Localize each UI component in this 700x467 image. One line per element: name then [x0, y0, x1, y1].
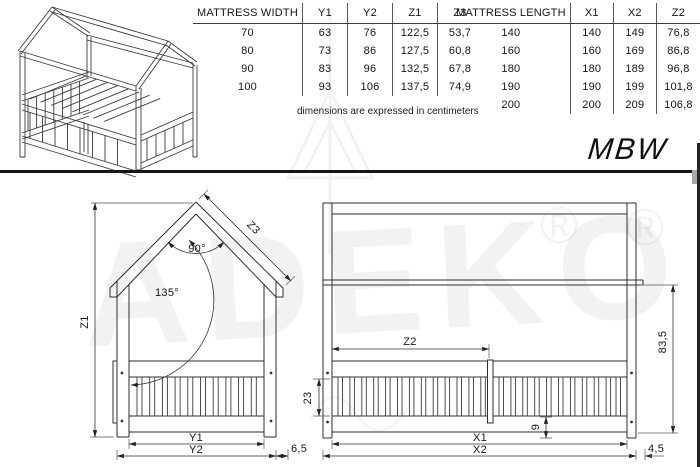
table-row: 14014014976,8: [452, 24, 700, 43]
isometric-view: [18, 7, 197, 177]
front-view-drawing: Z1 Z3 90° 135° Y1 Y2 6,5: [79, 190, 307, 460]
dim-label-base-height: 9: [530, 424, 542, 430]
dim-label-wall-height: 83,5: [657, 331, 669, 354]
table-row: 807386127,560,8: [193, 42, 482, 60]
dim-label-roof-overhang: 4,5: [648, 443, 664, 455]
table-title-cell: MATTRESS LENGTH: [452, 3, 570, 24]
size-cell: 70: [193, 24, 302, 43]
size-cell: 140: [452, 24, 570, 43]
dim-label-eave-angle: 135°: [155, 287, 179, 299]
column-header: X2: [613, 3, 656, 24]
value-cell: 76: [347, 24, 392, 43]
dim-label-side-offset: 6,5: [291, 443, 307, 455]
table-title-cell: MATTRESS WIDTH: [193, 3, 302, 24]
size-cell: 90: [193, 60, 302, 78]
value-cell: 122,5: [392, 24, 437, 43]
units-note: dimensions are expressed in centimeters: [297, 106, 479, 117]
column-header: X1: [570, 3, 613, 24]
size-cell: 80: [193, 42, 302, 60]
value-cell: 199: [613, 78, 656, 96]
mattress-length-table: MATTRESS LENGTHX1X2Z214014014976,8160160…: [452, 3, 700, 114]
value-cell: 93: [302, 78, 347, 96]
dim-label-z2: Z2: [403, 336, 416, 348]
size-cell: 190: [452, 78, 570, 96]
value-cell: 86: [347, 42, 392, 60]
table-row: 18018018996,8: [452, 60, 700, 78]
value-cell: 106,8: [656, 96, 700, 114]
table-row: 190190199101,8: [452, 78, 700, 96]
table-row: 200200209106,8: [452, 96, 700, 114]
product-code: MBW: [586, 133, 669, 167]
column-header: Z1: [392, 3, 437, 24]
table-row: 908396132,567,8: [193, 60, 482, 78]
column-header: Y2: [347, 3, 392, 24]
column-header: Z2: [656, 3, 700, 24]
dim-label-slat-height: 23: [302, 392, 314, 405]
table-row: 16016016986,8: [452, 42, 700, 60]
value-cell: 96,8: [656, 60, 700, 78]
dim-label-z1: Z1: [79, 315, 91, 328]
value-cell: 137,5: [392, 78, 437, 96]
value-cell: 86,8: [656, 42, 700, 60]
size-cell: 100: [193, 78, 302, 96]
dim-label-z3: Z3: [244, 219, 262, 237]
column-header: Y1: [302, 3, 347, 24]
value-cell: 200: [570, 96, 613, 114]
dim-label-y1: Y1: [189, 432, 203, 444]
value-cell: 127,5: [392, 42, 437, 60]
value-cell: 180: [570, 60, 613, 78]
side-view-drawing: Z2 23 9 83,5 X1 X2 4,5: [302, 203, 678, 460]
table-header-row: MATTRESS WIDTHY1Y2Z1Z3: [193, 3, 482, 24]
dim-label-x1: X1: [473, 432, 487, 444]
value-cell: 160: [570, 42, 613, 60]
section-divider-line: [0, 170, 698, 173]
dim-label-y2: Y2: [189, 444, 203, 456]
value-cell: 76,8: [656, 24, 700, 43]
spec-sheet: ADEKO ® ®: [0, 0, 700, 467]
value-cell: 106: [347, 78, 392, 96]
value-cell: 149: [613, 24, 656, 43]
value-cell: 132,5: [392, 60, 437, 78]
value-cell: 101,8: [656, 78, 700, 96]
table-row: 10093106137,574,9: [193, 78, 482, 96]
size-cell: 180: [452, 60, 570, 78]
value-cell: 209: [613, 96, 656, 114]
value-cell: 140: [570, 24, 613, 43]
value-cell: 169: [613, 42, 656, 60]
value-cell: 83: [302, 60, 347, 78]
value-cell: 190: [570, 78, 613, 96]
size-cell: 160: [452, 42, 570, 60]
value-cell: 189: [613, 60, 656, 78]
table-row: 706376122,553,7: [193, 24, 482, 43]
table-header-row: MATTRESS LENGTHX1X2Z2: [452, 3, 700, 24]
dim-label-x2: X2: [473, 444, 487, 456]
value-cell: 96: [347, 60, 392, 78]
mattress-width-table: MATTRESS WIDTHY1Y2Z1Z3706376122,553,7807…: [193, 3, 482, 96]
value-cell: 63: [302, 24, 347, 43]
page-edge-notch: [692, 170, 697, 184]
value-cell: 73: [302, 42, 347, 60]
